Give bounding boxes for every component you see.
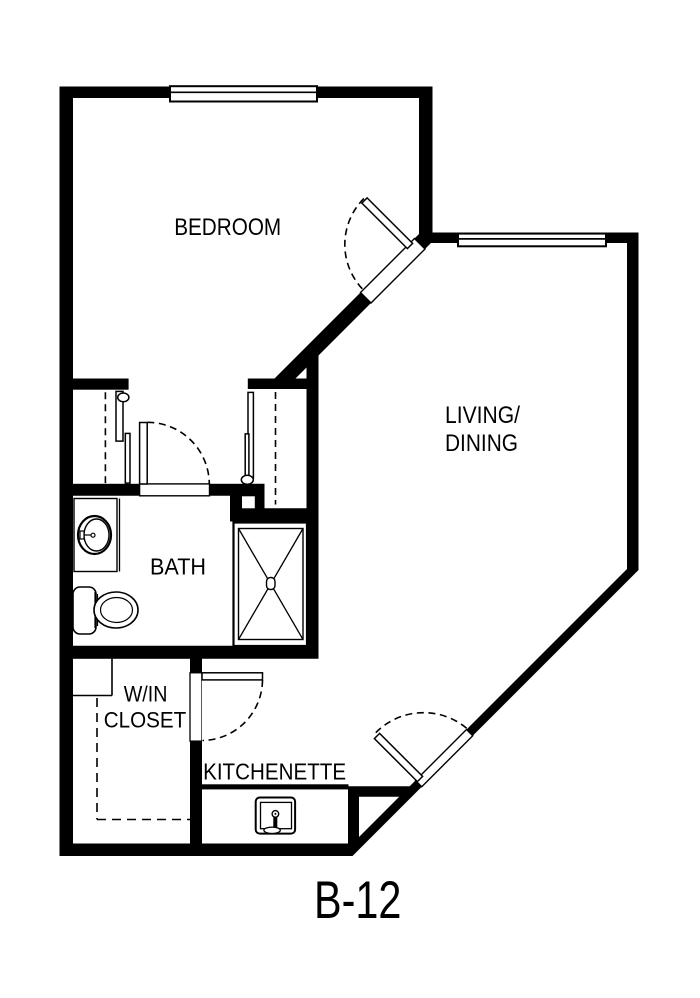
svg-text:BATH: BATH <box>150 554 206 580</box>
svg-text:CLOSET: CLOSET <box>104 708 187 733</box>
svg-text:DINING: DINING <box>445 430 518 457</box>
svg-text:KITCHENETTE: KITCHENETTE <box>203 758 346 784</box>
svg-text:BEDROOM: BEDROOM <box>174 214 281 241</box>
svg-text:B-12: B-12 <box>314 871 401 930</box>
svg-text:LIVING/: LIVING/ <box>445 402 520 429</box>
svg-text:W/IN: W/IN <box>124 681 168 706</box>
